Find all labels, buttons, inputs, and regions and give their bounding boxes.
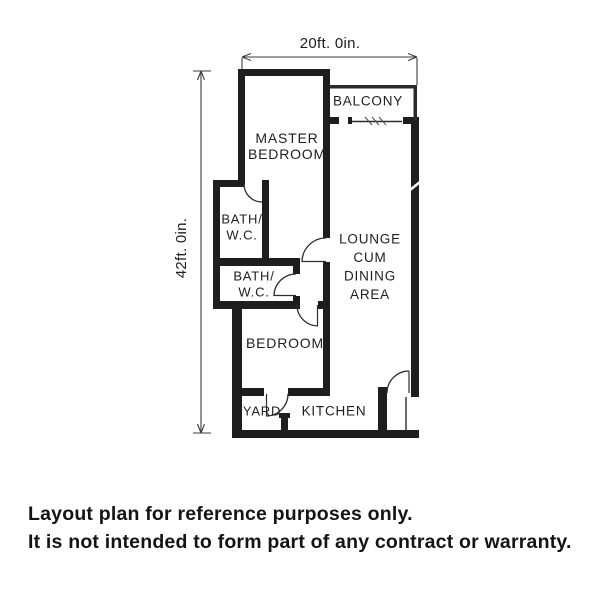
- bath1-door-arc: [244, 184, 262, 202]
- room-label-bath-wc-2: BATH/W.C.: [233, 269, 274, 300]
- wall-entrance-left: [378, 387, 387, 430]
- disclaimer: Layout plan for reference purposes only.…: [28, 501, 588, 556]
- wall-bath1-right: [262, 180, 269, 266]
- room-label-bedroom: BEDROOM: [246, 335, 324, 351]
- wall-yard-kitchen-stub: [281, 416, 288, 430]
- walls: [213, 69, 419, 438]
- disclaimer-line-1: Layout plan for reference purposes only.: [28, 501, 588, 529]
- wall-outer-left-lower: [232, 309, 242, 438]
- wall-bath1-bottom: [213, 258, 300, 266]
- wall-lounge-left-mid: [323, 262, 330, 301]
- wall-master-top: [238, 69, 330, 76]
- bath2-door-arc: [274, 274, 296, 296]
- room-label-balcony: BALCONY: [333, 94, 403, 109]
- entrance-door-arc: [387, 371, 409, 393]
- wall-bedroom-right: [323, 309, 330, 396]
- wall-bedroom-top-jamb: [318, 301, 330, 309]
- room-labels: BALCONYMASTERBEDROOMBATH/W.C.LOUNGECUMDI…: [221, 94, 403, 419]
- dimension-width-label: 20ft. 0in.: [300, 35, 361, 52]
- lounge-door-arc: [302, 238, 326, 262]
- wall-bedroom-bottom-left: [238, 388, 264, 396]
- balcony-rail-top: [330, 85, 417, 89]
- room-label-lounge: LOUNGECUMDININGAREA: [339, 232, 401, 303]
- wall-bottom: [232, 430, 419, 438]
- balcony-window-hatch: [365, 117, 386, 125]
- wall-bath2-bottom: [213, 301, 297, 309]
- room-label-yard: YARD: [243, 404, 281, 419]
- dimension-height: 42ft. 0in.: [173, 71, 211, 433]
- disclaimer-line-2: It is not intended to form part of any c…: [28, 529, 588, 557]
- wall-bath-left: [213, 180, 220, 309]
- balcony-rail-right: [414, 85, 418, 120]
- dimension-height-label: 42ft. 0in.: [173, 218, 190, 279]
- room-label-bath-wc-1: BATH/W.C.: [221, 212, 262, 243]
- room-label-master-bedroom: MASTERBEDROOM: [248, 130, 326, 162]
- wall-outer-right: [411, 120, 419, 397]
- wall-balcony-stub-left: [329, 117, 339, 124]
- wall-master-left: [238, 69, 245, 185]
- dimension-height-extensions: [193, 71, 211, 433]
- bedroom-door-arc: [297, 305, 318, 326]
- room-label-kitchen: KITCHEN: [302, 404, 367, 419]
- wall-bath2-right-upper: [293, 258, 300, 274]
- wall-balcony-window-jamb: [348, 117, 352, 124]
- wall-bedroom-bottom-right: [288, 388, 330, 396]
